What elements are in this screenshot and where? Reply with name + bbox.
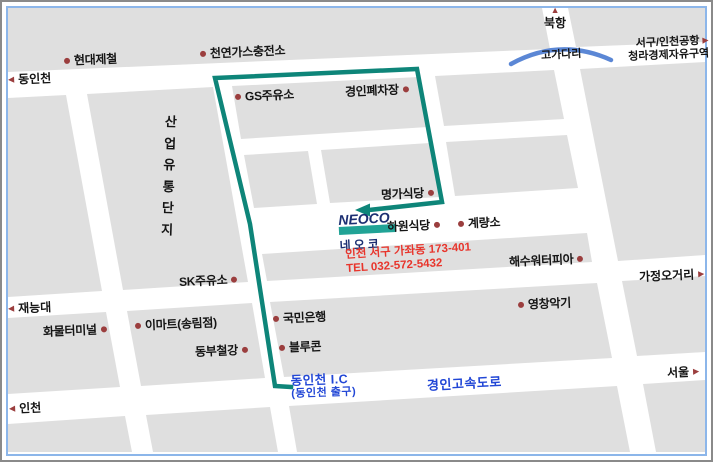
direction-label: 서울 [667, 363, 690, 381]
poi-cng-charging-station: 천연가스충전소 [200, 41, 286, 62]
poi-marker-dot [235, 93, 241, 99]
poi-label: 동부철강 [195, 341, 239, 360]
direction-label: 동인천 [18, 69, 52, 87]
poi-emart-songnim: 이마트(송림점) [135, 313, 218, 334]
direction-label: 재능대 [18, 298, 52, 316]
direction-label: 가정오거리 [639, 266, 695, 285]
poi-hawon-restaurant: 하원식당 [387, 216, 441, 235]
poi-label: 해수워터피아 [509, 250, 574, 270]
poi-gyeongin-scrapyard: 경인폐차장 [345, 80, 409, 100]
poi-gyeryangso: 계량소 [458, 213, 501, 232]
poi-youngchang-music: 영창악기 [518, 294, 572, 313]
poi-label: 하원식당 [387, 216, 431, 235]
poi-label: 화물터미널 [43, 321, 97, 340]
direction-seoul: 서울▶ [667, 363, 700, 381]
poi-label: 블루콘 [289, 337, 322, 355]
poi-label: SK주유소 [179, 271, 228, 290]
direction-arrow-right-icon: ▶ [702, 37, 708, 45]
poi-marker-dot [518, 301, 524, 307]
direction-seogu-incheon-airport: 서구/인천공항▶청라경제자유구역 [627, 34, 709, 63]
road-label-dongincheon-ic: 동인천 I.C(동인천 출구) [291, 373, 357, 401]
direction-gajeong-ogeori: 가정오거리▶ [639, 265, 705, 285]
poi-marker-dot [135, 322, 141, 328]
poi-marker-dot [64, 57, 70, 63]
direction-arrow-left-icon: ◀ [8, 75, 14, 83]
poi-dongbu-steel: 동부철강 [195, 341, 249, 360]
direction-arrow-right-icon: ▶ [698, 270, 704, 278]
road-label-gogadari-overpass: 고가다리 [541, 45, 582, 63]
road-label-line: (동인천 출구) [291, 386, 356, 401]
poi-sk-gas-station: SK주유소 [179, 270, 238, 290]
poi-bluecon: 블루콘 [279, 337, 322, 356]
poi-marker-dot [279, 344, 285, 350]
poi-marker-dot [200, 50, 206, 56]
direction-label: 청라경제자유구역 [628, 47, 709, 63]
poi-label: 국민은행 [283, 308, 327, 327]
poi-myeongga-restaurant: 명가식당 [381, 184, 435, 203]
poi-label: GS주유소 [245, 85, 295, 104]
poi-hyundai-steel: 현대제철 [64, 50, 118, 69]
direction-arrow-left-icon: ◀ [9, 404, 15, 412]
direction-arrow-right-icon: ▶ [693, 367, 699, 375]
direction-dongincheon: ◀동인천 [8, 69, 52, 88]
road-label-industrial-distribution-complex: 산 업 유 통 단 지 [161, 111, 177, 240]
direction-jaeneung-univ: ◀재능대 [8, 298, 52, 317]
poi-label: 이마트(송림점) [145, 313, 218, 333]
direction-bukhang: ▲북항 [544, 6, 566, 31]
poi-label: 경인폐차장 [345, 81, 399, 100]
poi-label: 현대제철 [74, 50, 118, 69]
poi-label: 계량소 [468, 213, 501, 231]
neoco-location-map: NEOCO 네오코 인천 서구 가좌동 173-401 TEL 032-572-… [0, 0, 713, 462]
poi-cargo-terminal: 화물터미널 [43, 320, 107, 340]
direction-line: 청라경제자유구역 [628, 47, 709, 63]
poi-label: 명가식당 [381, 184, 425, 203]
labels-layer: NEOCO 네오코 인천 서구 가좌동 173-401 TEL 032-572-… [0, 0, 713, 462]
poi-kookmin-bank: 국민은행 [273, 308, 327, 327]
poi-marker-dot [428, 189, 434, 195]
road-label-gyeongin-expressway: 경인고속도로 [427, 371, 503, 394]
poi-marker-dot [242, 346, 248, 352]
direction-label: 인천 [19, 399, 42, 417]
poi-marker-dot [434, 221, 440, 227]
direction-incheon: ◀인천 [9, 399, 42, 417]
poi-marker-dot [403, 86, 409, 92]
direction-arrow-left-icon: ◀ [8, 304, 14, 312]
poi-marker-dot [458, 220, 464, 226]
poi-gs-gas-station: GS주유소 [235, 85, 295, 105]
poi-marker-dot [101, 326, 107, 332]
direction-label: 북항 [544, 14, 566, 31]
poi-haesu-waterpia: 해수워터피아 [509, 250, 584, 270]
poi-label: 천연가스충전소 [210, 41, 286, 61]
poi-marker-dot [231, 276, 237, 282]
poi-marker-dot [273, 315, 279, 321]
poi-marker-dot [577, 255, 583, 261]
poi-label: 영창악기 [528, 294, 572, 313]
direction-arrow-up-icon: ▲ [551, 6, 560, 14]
